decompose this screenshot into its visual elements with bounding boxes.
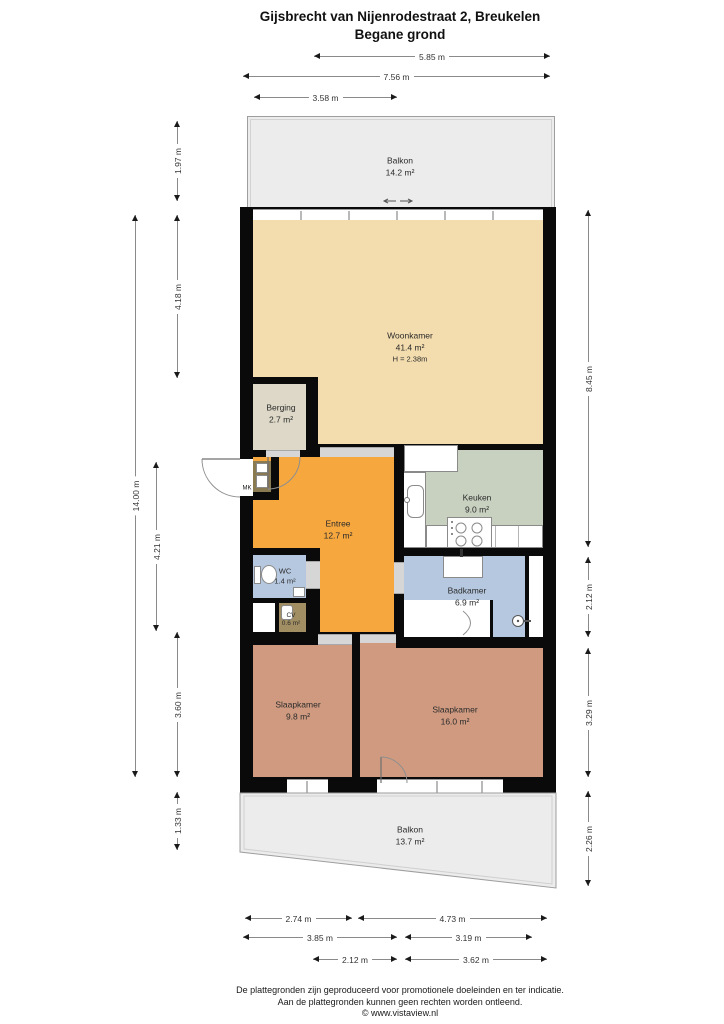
dimension-bottom-3: 3.85 m <box>243 937 397 938</box>
stove <box>447 517 492 548</box>
room-label-balkon-boven: Balkon 14.2 m² <box>386 155 415 180</box>
room-name: Slaapkamer <box>275 699 320 711</box>
room-name: Woonkamer <box>387 329 433 341</box>
toilet-tank <box>254 566 261 584</box>
dimension-right-4: 2.26 m <box>588 791 589 886</box>
wall <box>490 600 493 637</box>
kitchen-sink <box>407 485 424 518</box>
room-area: 1.4 m² <box>274 576 295 586</box>
wall <box>394 444 404 648</box>
dimension-label: 4.18 m <box>173 280 183 314</box>
room-label-slaapkamer-rechts: Slaapkamer 16.0 m² <box>432 704 477 729</box>
floorplan-page: Gijsbrecht van Nijenrodestraat 2, Breuke… <box>0 0 724 1024</box>
bathroom-sink <box>443 556 483 578</box>
dimension-right-1: 8.45 m <box>588 210 589 547</box>
badkamer-door <box>394 562 404 594</box>
counter-seam <box>495 526 496 547</box>
room-name: Berging <box>266 402 295 414</box>
room-name: Entree <box>324 518 353 530</box>
title-floor: Begane grond <box>260 26 541 44</box>
room-area: 12.7 m² <box>324 530 353 542</box>
room-area: 16.0 m² <box>432 716 477 728</box>
dimension-label: 14.00 m <box>131 477 141 516</box>
dimension-label: 4.21 m <box>152 530 162 564</box>
dimension-label: 8.45 m <box>584 362 594 396</box>
meter-box <box>256 463 268 473</box>
room-label-keuken: Keuken 9.0 m² <box>463 492 492 517</box>
window-mullion <box>444 211 446 220</box>
window-mullion <box>492 211 494 220</box>
dimension-label: 2.12 m <box>584 580 594 614</box>
title-address: Gijsbrecht van Nijenrodestraat 2, Breuke… <box>260 8 541 26</box>
room-ceiling-height: H = 2.38m <box>387 354 433 365</box>
room-name: Balkon <box>386 155 415 167</box>
dimension-top-2: 7.56 m <box>243 76 550 77</box>
room-name: Slaapkamer <box>432 704 477 716</box>
dimension-bottom-5: 2.12 m <box>313 959 397 960</box>
window-mullion <box>300 211 302 220</box>
disclaimer: De plattegronden zijn geproduceerd voor … <box>236 985 564 1020</box>
dimension-left-3: 14.00 m <box>135 215 136 777</box>
room-area: 2.7 m² <box>266 414 295 426</box>
dimension-right-3: 3.29 m <box>588 648 589 777</box>
dimension-bottom-4: 3.19 m <box>405 937 532 938</box>
dimension-left-2: 4.18 m <box>177 215 178 378</box>
dimension-bottom-1: 2.74 m <box>245 918 352 919</box>
wc-door <box>306 561 320 589</box>
disclaimer-line2: Aan de plattegronden kunnen geen rechten… <box>236 997 564 1009</box>
room-area: 41.4 m² <box>387 342 433 354</box>
meterkast-label: MK <box>243 485 252 494</box>
wall <box>396 637 543 648</box>
window <box>377 779 503 795</box>
dimension-left-5: 3.60 m <box>177 632 178 777</box>
dimension-left-1: 1.97 m <box>177 121 178 201</box>
room-area: 6.9 m² <box>448 597 487 609</box>
dimension-label: 3.60 m <box>173 688 183 722</box>
room-slaapkamer-rechts <box>360 643 396 777</box>
dimension-label: 3.62 m <box>459 955 493 965</box>
room-label-woonkamer: Woonkamer 41.4 m² H = 2.38m <box>387 329 433 365</box>
wc-hand-basin <box>293 587 305 597</box>
dimension-label: 5.85 m <box>415 52 449 62</box>
bathroom-cupboard <box>529 556 543 637</box>
dimension-left-6: 1.33 m <box>177 792 178 850</box>
wall <box>352 632 360 777</box>
dimension-label: 3.58 m <box>309 93 343 103</box>
window <box>287 779 328 795</box>
room-label-berging: Berging 2.7 m² <box>266 402 295 427</box>
page-title: Gijsbrecht van Nijenrodestraat 2, Breuke… <box>260 8 541 43</box>
room-area: 9.0 m² <box>463 504 492 516</box>
room-name: CV <box>282 612 300 620</box>
front-door-arc <box>202 459 240 497</box>
room-label-badkamer: Badkamer 6.9 m² <box>448 585 487 610</box>
room-name: Keuken <box>463 492 492 504</box>
meter-box <box>256 475 268 488</box>
room-label-cv: CV 0.6 m² <box>282 612 300 628</box>
room-name: WC <box>274 566 295 576</box>
room-name: Balkon <box>396 824 425 836</box>
dimension-bottom-6: 3.62 m <box>405 959 547 960</box>
counter-seam <box>518 526 519 547</box>
window-mullion <box>481 781 483 793</box>
window-mullion <box>306 781 308 793</box>
dimension-label: 7.56 m <box>380 72 414 82</box>
closet <box>253 603 275 632</box>
dimension-label: 3.85 m <box>303 933 337 943</box>
dimension-left-4: 4.21 m <box>156 462 157 631</box>
dimension-top-1: 5.85 m <box>314 56 550 57</box>
dimension-label: 2.74 m <box>282 914 316 924</box>
faucet-icon <box>460 549 463 557</box>
room-area: 0.6 m² <box>282 620 300 628</box>
wall <box>253 492 279 500</box>
dimension-top-3: 3.58 m <box>254 97 397 98</box>
dimension-label: 1.97 m <box>173 144 183 178</box>
room-label-entree: Entree 12.7 m² <box>324 518 353 543</box>
dimension-bottom-2: 4.73 m <box>358 918 547 919</box>
room-label-balkon-onder: Balkon 13.7 m² <box>396 824 425 849</box>
copyright: © www.vistaview.nl <box>236 1008 564 1020</box>
room-label-slaapkamer-links: Slaapkamer 9.8 m² <box>275 699 320 724</box>
window-mullion <box>436 781 438 793</box>
room-area: 13.7 m² <box>396 836 425 848</box>
window-mullion <box>348 211 350 220</box>
room-area: 9.8 m² <box>275 711 320 723</box>
dimension-label: 4.73 m <box>436 914 470 924</box>
wall <box>394 548 543 556</box>
dimension-label: 1.33 m <box>173 804 183 838</box>
disclaimer-line1: De plattegronden zijn geproduceerd voor … <box>236 985 564 997</box>
room-name: MK <box>243 485 252 494</box>
dimension-label: 2.12 m <box>338 955 372 965</box>
dimension-label: 2.26 m <box>584 822 594 856</box>
window-mullion <box>396 211 398 220</box>
kitchen-counter <box>404 445 458 472</box>
dimension-label: 3.19 m <box>452 933 486 943</box>
dimension-right-2: 2.12 m <box>588 557 589 637</box>
dimension-label: 3.29 m <box>584 696 594 730</box>
room-label-wc: WC 1.4 m² <box>274 566 295 586</box>
room-name: Badkamer <box>448 585 487 597</box>
room-area: 14.2 m² <box>386 167 415 179</box>
